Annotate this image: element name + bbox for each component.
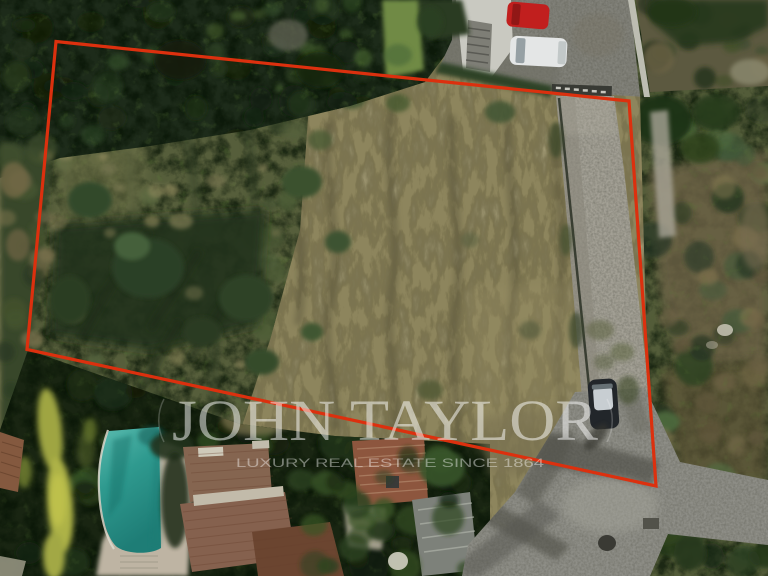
svg-text:JOHN TAYLOR: JOHN TAYLOR	[172, 388, 598, 453]
svg-text:LUXURY REAL ESTATE SINCE 1864: LUXURY REAL ESTATE SINCE 1864	[236, 456, 544, 470]
